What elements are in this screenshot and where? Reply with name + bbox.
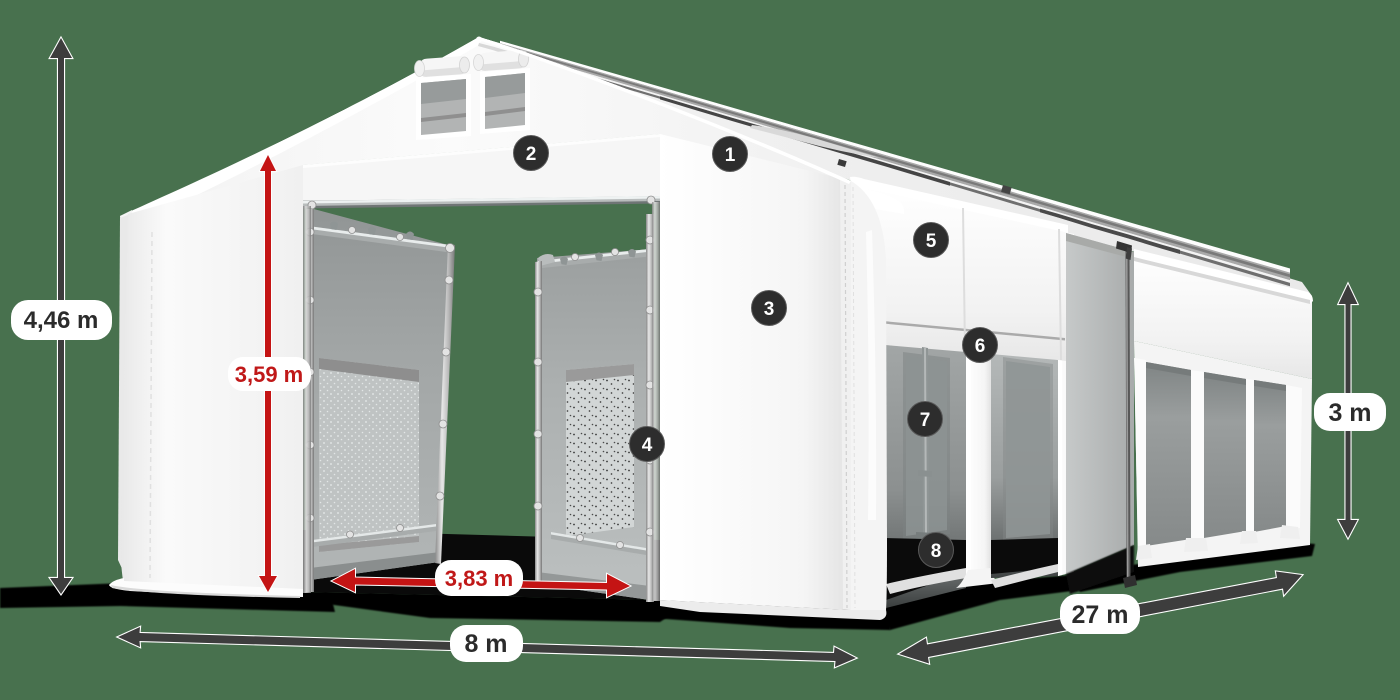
svg-text:4: 4 bbox=[642, 435, 653, 456]
svg-text:4,46 m: 4,46 m bbox=[24, 307, 99, 334]
svg-text:3,59 m: 3,59 m bbox=[235, 362, 304, 387]
svg-text:7: 7 bbox=[920, 410, 931, 431]
svg-text:3 m: 3 m bbox=[1328, 399, 1371, 427]
svg-text:5: 5 bbox=[926, 231, 937, 252]
svg-text:2: 2 bbox=[526, 144, 537, 165]
svg-text:8: 8 bbox=[931, 541, 942, 562]
svg-text:8 m: 8 m bbox=[464, 630, 507, 658]
svg-text:6: 6 bbox=[975, 336, 986, 357]
svg-text:1: 1 bbox=[725, 145, 736, 166]
svg-text:27 m: 27 m bbox=[1072, 601, 1129, 629]
svg-text:3: 3 bbox=[764, 299, 775, 320]
svg-text:3,83 m: 3,83 m bbox=[445, 566, 514, 591]
